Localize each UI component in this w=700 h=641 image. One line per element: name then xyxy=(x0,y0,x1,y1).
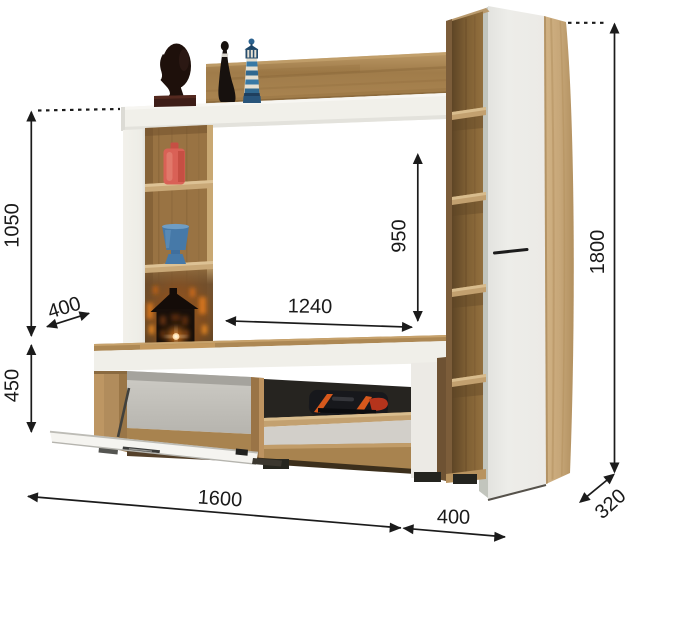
svg-text:950: 950 xyxy=(389,219,411,252)
svg-text:400: 400 xyxy=(437,506,471,529)
svg-text:1600: 1600 xyxy=(197,486,243,511)
svg-text:1800: 1800 xyxy=(587,230,609,275)
svg-text:1240: 1240 xyxy=(288,295,333,318)
svg-text:1050: 1050 xyxy=(2,203,24,248)
svg-text:450: 450 xyxy=(1,369,23,402)
